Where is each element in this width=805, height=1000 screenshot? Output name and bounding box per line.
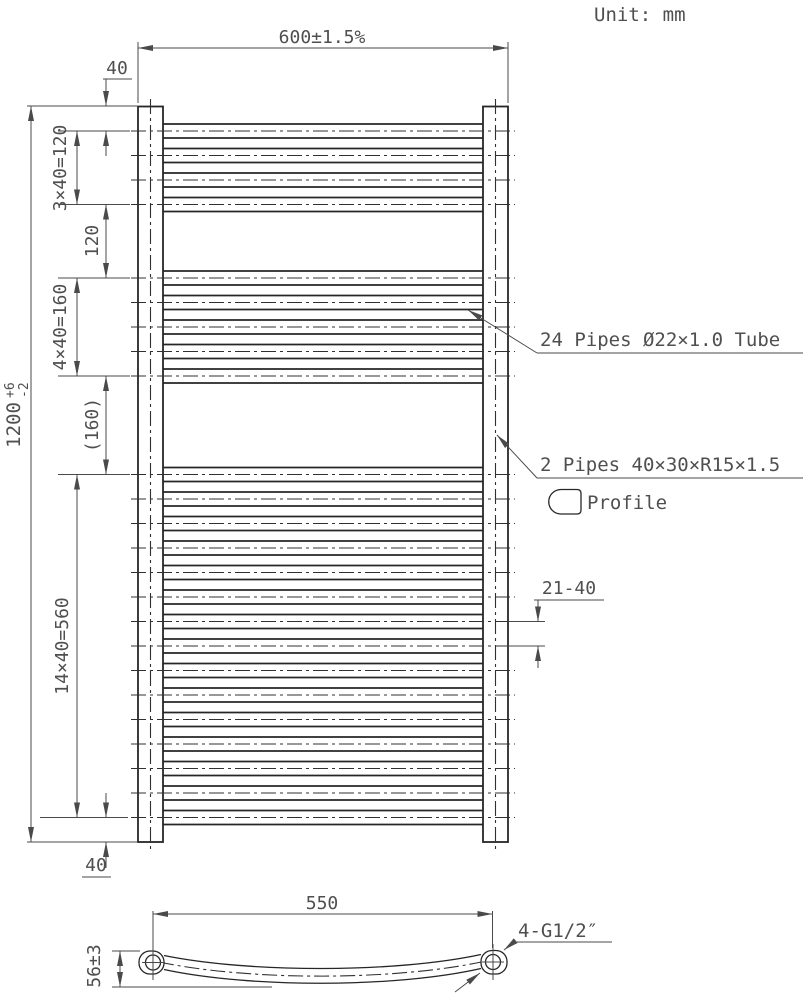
leader-line	[497, 435, 537, 478]
pipe-spacing-text: 21-40	[542, 578, 596, 599]
dimension-overall-width: 600±1.5%	[138, 27, 508, 103]
profile-text: Profile	[587, 492, 667, 514]
leader-line	[455, 973, 480, 992]
posts-note-text: 2 Pipes 40×30×R15×1.5	[540, 454, 780, 476]
dimension-bottom-offset: 40	[82, 793, 111, 877]
right-connection-fitting	[481, 944, 507, 980]
tolerance-plus: +6	[3, 382, 18, 398]
gap2-text: (160)	[82, 398, 103, 452]
bottom-view: 550 56±3 4-G1/2″	[84, 893, 612, 992]
front-view-radiator	[131, 99, 515, 850]
connection-spacing-text: 550	[306, 893, 339, 914]
dimension-group1-pitch: 3×40=120	[50, 125, 77, 212]
dimension-pipe-spacing: 21-40	[508, 578, 604, 668]
group3-pitch-text: 14×40=560	[52, 597, 73, 695]
overall-height-text-group: 1200 +6 -2	[3, 382, 32, 448]
drawing-sheet: 600±1.5% Unit: mm 40 1200 +6 -2 3×40=120…	[0, 0, 805, 1000]
tolerance-minus: -2	[17, 382, 32, 398]
profile-legend: Profile	[549, 490, 667, 515]
dimension-group2-pitch: 4×40=160	[50, 278, 77, 376]
group1-pitch-text: 3×40=120	[50, 125, 71, 212]
technical-drawing: 600±1.5% Unit: mm 40 1200 +6 -2 3×40=120…	[0, 0, 805, 1000]
top-offset-text: 40	[106, 58, 128, 79]
pipes-note-text: 24 Pipes Ø22×1.0 Tube	[540, 329, 780, 351]
group2-pitch-text: 4×40=160	[50, 284, 71, 371]
bow-depth-text: 56±3	[84, 944, 105, 987]
unit-note: Unit: mm	[594, 4, 686, 26]
overall-height-text: 1200	[3, 402, 25, 448]
d-profile-icon	[549, 490, 581, 515]
left-connection-fitting	[139, 945, 164, 980]
dimension-gap2: (160)	[82, 376, 106, 475]
bottom-offset-text: 40	[85, 855, 107, 876]
leader-line	[504, 942, 514, 950]
dimension-connection-spacing: 550	[153, 893, 493, 948]
dimension-top-offset: 40	[103, 58, 132, 156]
overall-width-text: 600±1.5%	[279, 27, 366, 48]
gap1-text: 120	[82, 225, 103, 258]
annotation-posts: 2 Pipes 40×30×R15×1.5	[497, 435, 803, 478]
dimension-gap1: 120	[82, 205, 106, 279]
annotation-pipes: 24 Pipes Ø22×1.0 Tube	[468, 310, 803, 353]
dimension-group3-pitch: 14×40=560	[52, 475, 77, 818]
connections-text: 4-G1/2″	[518, 920, 598, 942]
